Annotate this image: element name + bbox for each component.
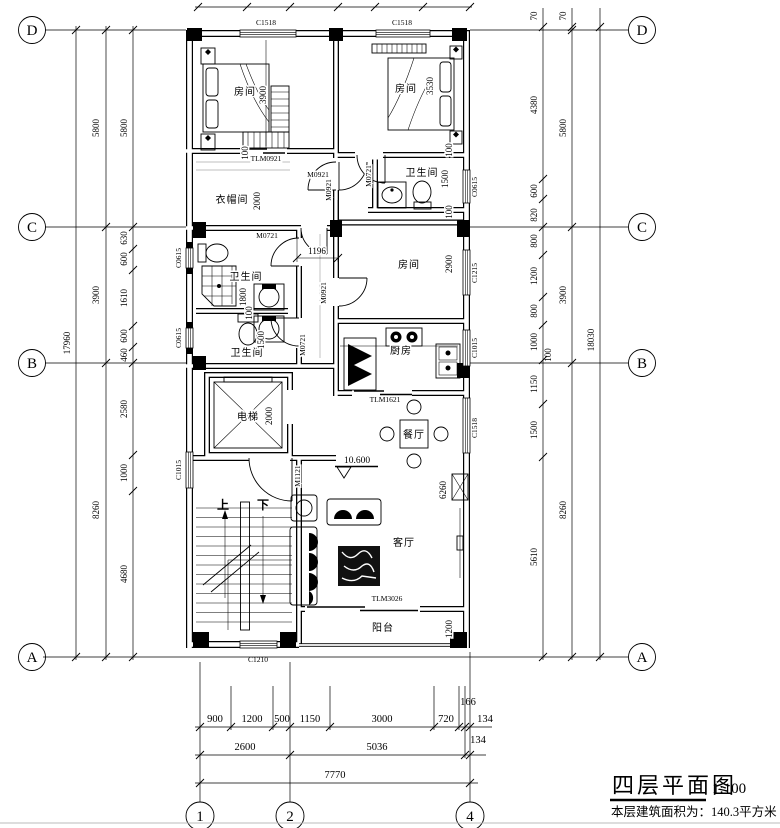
label-m0721-2: M0721 bbox=[364, 165, 373, 187]
label-c1215-right: C1215 bbox=[470, 263, 479, 283]
label-m0921-3: M0921 bbox=[319, 282, 328, 304]
title-block: 四层平面图 1:100 本层建筑面积为：140.3平方米 bbox=[0, 773, 780, 823]
dim-bath1: 1800 bbox=[238, 288, 248, 307]
dim-living: 6260 bbox=[438, 481, 448, 500]
columns bbox=[187, 28, 470, 648]
dim: 720 bbox=[438, 714, 454, 725]
dim: 5800 bbox=[91, 119, 101, 138]
dim: 1610 bbox=[119, 289, 129, 308]
room-label-balcony: 阳台 bbox=[372, 621, 394, 634]
dim: 166 bbox=[460, 697, 476, 708]
label-c0615-left1: C0615 bbox=[174, 248, 183, 268]
dim-bed3: 2900 bbox=[444, 255, 454, 274]
grid-label-d-right: D bbox=[637, 23, 648, 39]
dim: 1000 bbox=[119, 464, 129, 483]
dim: 820 bbox=[529, 208, 539, 222]
room-label-living: 客厅 bbox=[393, 536, 415, 549]
dim: 134 bbox=[477, 714, 494, 725]
dim: 900 bbox=[207, 714, 223, 725]
dim: 600 bbox=[529, 184, 539, 198]
label-m0721-1: M0721 bbox=[256, 231, 278, 240]
window-c1518-right bbox=[463, 398, 470, 453]
dim: 800 bbox=[529, 234, 539, 248]
window-c0615-left-2 bbox=[186, 322, 193, 354]
dim: 2580 bbox=[119, 400, 129, 419]
label-tlm3026: TLM3026 bbox=[372, 594, 403, 603]
dim-total-left: 17960 bbox=[62, 331, 72, 354]
label-c1210: C1210 bbox=[248, 655, 268, 664]
room-label-bathroom1: 卫生间 bbox=[230, 270, 263, 283]
bedroom2-furniture bbox=[372, 44, 462, 144]
room-label-bedroom2: 房间 bbox=[395, 82, 417, 95]
window-c0615-right bbox=[463, 170, 470, 203]
dim: 1150 bbox=[300, 714, 321, 725]
window-c1215-right bbox=[463, 250, 470, 295]
dim-gap-2: 100 bbox=[444, 143, 454, 157]
room-label-bedroom3: 房间 bbox=[398, 258, 420, 271]
stairs-down-label: 下 bbox=[257, 498, 269, 512]
dim: 5610 bbox=[529, 548, 539, 567]
dim: 460 bbox=[119, 348, 129, 362]
dims-right: 70 4380 600 820 800 1200 800 1000 100 11… bbox=[529, 11, 596, 566]
grid-label-c-right: C bbox=[637, 220, 647, 236]
door-m0921-hall-right bbox=[339, 162, 367, 190]
dim-hall: 1196 bbox=[308, 246, 326, 256]
room-label-dining: 餐厅 bbox=[403, 428, 425, 441]
level-marker bbox=[335, 467, 378, 479]
floor-plan-canvas: 5800 630 600 1610 600 460 2580 1000 4680… bbox=[0, 0, 780, 828]
door-m1121-stairhall bbox=[249, 458, 292, 501]
dim: 100 bbox=[543, 348, 553, 362]
furniture bbox=[196, 40, 468, 630]
level-marker-value: 10.600 bbox=[344, 456, 370, 466]
dim: 2600 bbox=[235, 742, 256, 753]
dim-gap-3: 100 bbox=[444, 205, 454, 219]
door-m0921-bedroom3 bbox=[339, 278, 367, 306]
dim: 5800 bbox=[558, 119, 568, 138]
label-m1121: M1121 bbox=[293, 465, 302, 487]
dim-elevator: 2000 bbox=[264, 407, 274, 426]
drawing-area-note: 本层建筑面积为：140.3平方米 bbox=[611, 804, 777, 819]
grid-label-b-right: B bbox=[637, 356, 647, 372]
grid-label-a-left: A bbox=[27, 650, 38, 666]
grid-label-a-right: A bbox=[637, 650, 648, 666]
dim: 134 bbox=[470, 735, 487, 746]
label-m0721-3: M0721 bbox=[298, 334, 307, 356]
room-label-bathroom3: 卫生间 bbox=[406, 166, 439, 179]
dim-bath2: 1500 bbox=[256, 331, 266, 350]
dim: 800 bbox=[529, 304, 539, 318]
opening-labels: C1518 C1518 C0615 C0615 C1015 C0615 C121… bbox=[174, 18, 479, 664]
dim: 600 bbox=[119, 329, 129, 343]
window-c0615-left-1 bbox=[186, 242, 193, 274]
dim: 1150 bbox=[529, 375, 539, 393]
dim-total-bottom: 7770 bbox=[325, 770, 346, 781]
dim: 500 bbox=[274, 714, 290, 725]
floor-plan-sheet: 5800 630 600 1610 600 460 2580 1000 4680… bbox=[0, 0, 780, 828]
label-c1518-top1: C1518 bbox=[256, 18, 276, 27]
dim-balcony: 1200 bbox=[444, 620, 454, 639]
room-label-cloakroom: 衣帽间 bbox=[216, 193, 249, 206]
dim: 1500 bbox=[529, 421, 539, 440]
dim-bath3: 1500 bbox=[440, 170, 450, 189]
dim: 1000 bbox=[529, 333, 539, 352]
room-label-elevator: 电梯 bbox=[237, 410, 259, 423]
dim: 630 bbox=[119, 231, 129, 245]
dim-bed1: 3900 bbox=[258, 86, 268, 105]
room-label-kitchen: 厨房 bbox=[390, 344, 412, 357]
label-tlm1621: TLM1621 bbox=[370, 395, 401, 404]
label-c0615-right: C0615 bbox=[470, 177, 479, 197]
dims-bottom: 900 1200 500 1150 3000 720 166 134 2600 … bbox=[207, 697, 494, 781]
dim-cloak: 2000 bbox=[252, 192, 262, 211]
drawing-scale: 1:100 bbox=[712, 781, 746, 797]
dim: 1200 bbox=[242, 714, 263, 725]
label-c1518-top2: C1518 bbox=[392, 18, 412, 27]
kitchen-fixtures bbox=[340, 328, 460, 390]
dim: 4680 bbox=[119, 565, 129, 584]
window-c1518-top-1 bbox=[240, 30, 296, 37]
dim: 5036 bbox=[367, 742, 388, 753]
window-c1015-left bbox=[186, 452, 193, 488]
dim: 8260 bbox=[91, 501, 101, 520]
label-tlm0921: TLM0921 bbox=[251, 154, 282, 163]
dim-bed2: 3530 bbox=[425, 77, 435, 96]
dim: 4380 bbox=[529, 96, 539, 115]
stairs bbox=[196, 502, 292, 630]
dim: 3900 bbox=[558, 286, 568, 305]
stairs-up-label: 上 bbox=[217, 497, 229, 512]
dim-gap-1: 100 bbox=[244, 306, 254, 320]
dims-left: 5800 630 600 1610 600 460 2580 1000 4680… bbox=[62, 119, 129, 584]
label-c0615-left2: C0615 bbox=[174, 328, 183, 348]
dim: 8260 bbox=[558, 501, 568, 520]
dim: 70 bbox=[558, 11, 568, 21]
window-c1015-right bbox=[463, 330, 470, 366]
label-c1518-right: C1518 bbox=[470, 418, 479, 438]
dim: 5800 bbox=[119, 119, 129, 138]
grid-label-c-left: C bbox=[27, 220, 37, 236]
room-labels: 房间 房间 房间 衣帽间 卫生间 卫生间 卫生间 电梯 厨房 餐厅 客厅 阳台 … bbox=[216, 82, 439, 634]
dim-total-right: 18030 bbox=[586, 328, 596, 351]
room-label-bedroom1: 房间 bbox=[234, 85, 256, 98]
bathroom3-fixtures bbox=[378, 181, 431, 209]
dim: 1200 bbox=[529, 267, 539, 286]
grid-label-b-left: B bbox=[27, 356, 37, 372]
window-c1210-bottom bbox=[240, 641, 277, 648]
dim: 600 bbox=[119, 252, 129, 266]
label-m0921-1: M0921 bbox=[307, 170, 329, 179]
label-m0921-2: M0921 bbox=[324, 179, 333, 201]
dim: 3900 bbox=[91, 286, 101, 305]
grid-label-d-left: D bbox=[27, 23, 38, 39]
label-c1015-left: C1015 bbox=[174, 460, 183, 480]
label-c1015-right: C1015 bbox=[470, 338, 479, 358]
window-c1518-top-2 bbox=[376, 30, 430, 37]
dim: 70 bbox=[529, 11, 539, 21]
dim-gap-4: 100 bbox=[240, 146, 250, 160]
dim: 3000 bbox=[372, 714, 393, 725]
